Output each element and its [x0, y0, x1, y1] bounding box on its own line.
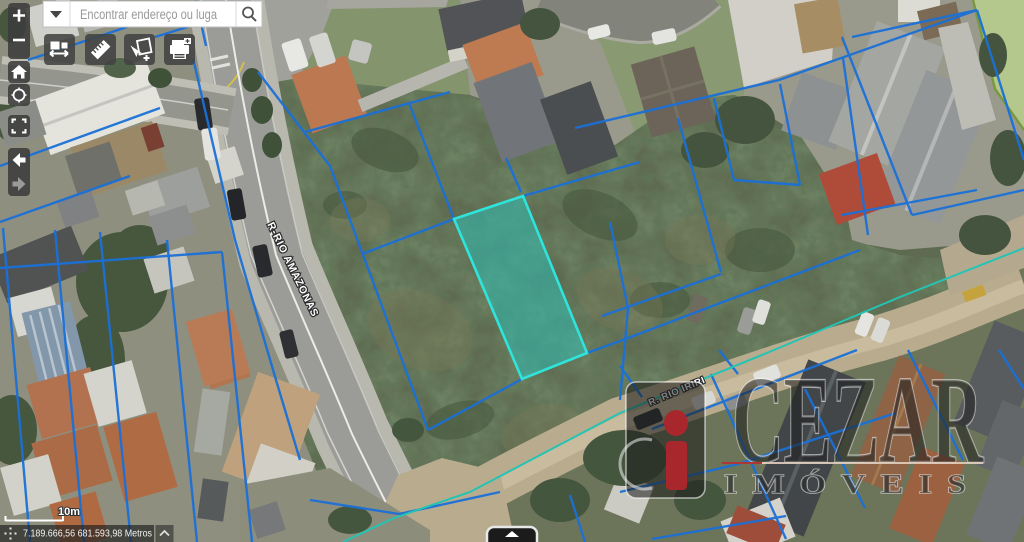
svg-text:IMÓVEIS: IMÓVEIS	[724, 469, 981, 499]
svg-text:7.189.666,56 681.593,98 Metros: 7.189.666,56 681.593,98 Metros	[23, 528, 152, 540]
svg-text:10m: 10m	[58, 506, 80, 518]
svg-text:Encontrar endereço ou luga: Encontrar endereço ou luga	[80, 7, 217, 22]
